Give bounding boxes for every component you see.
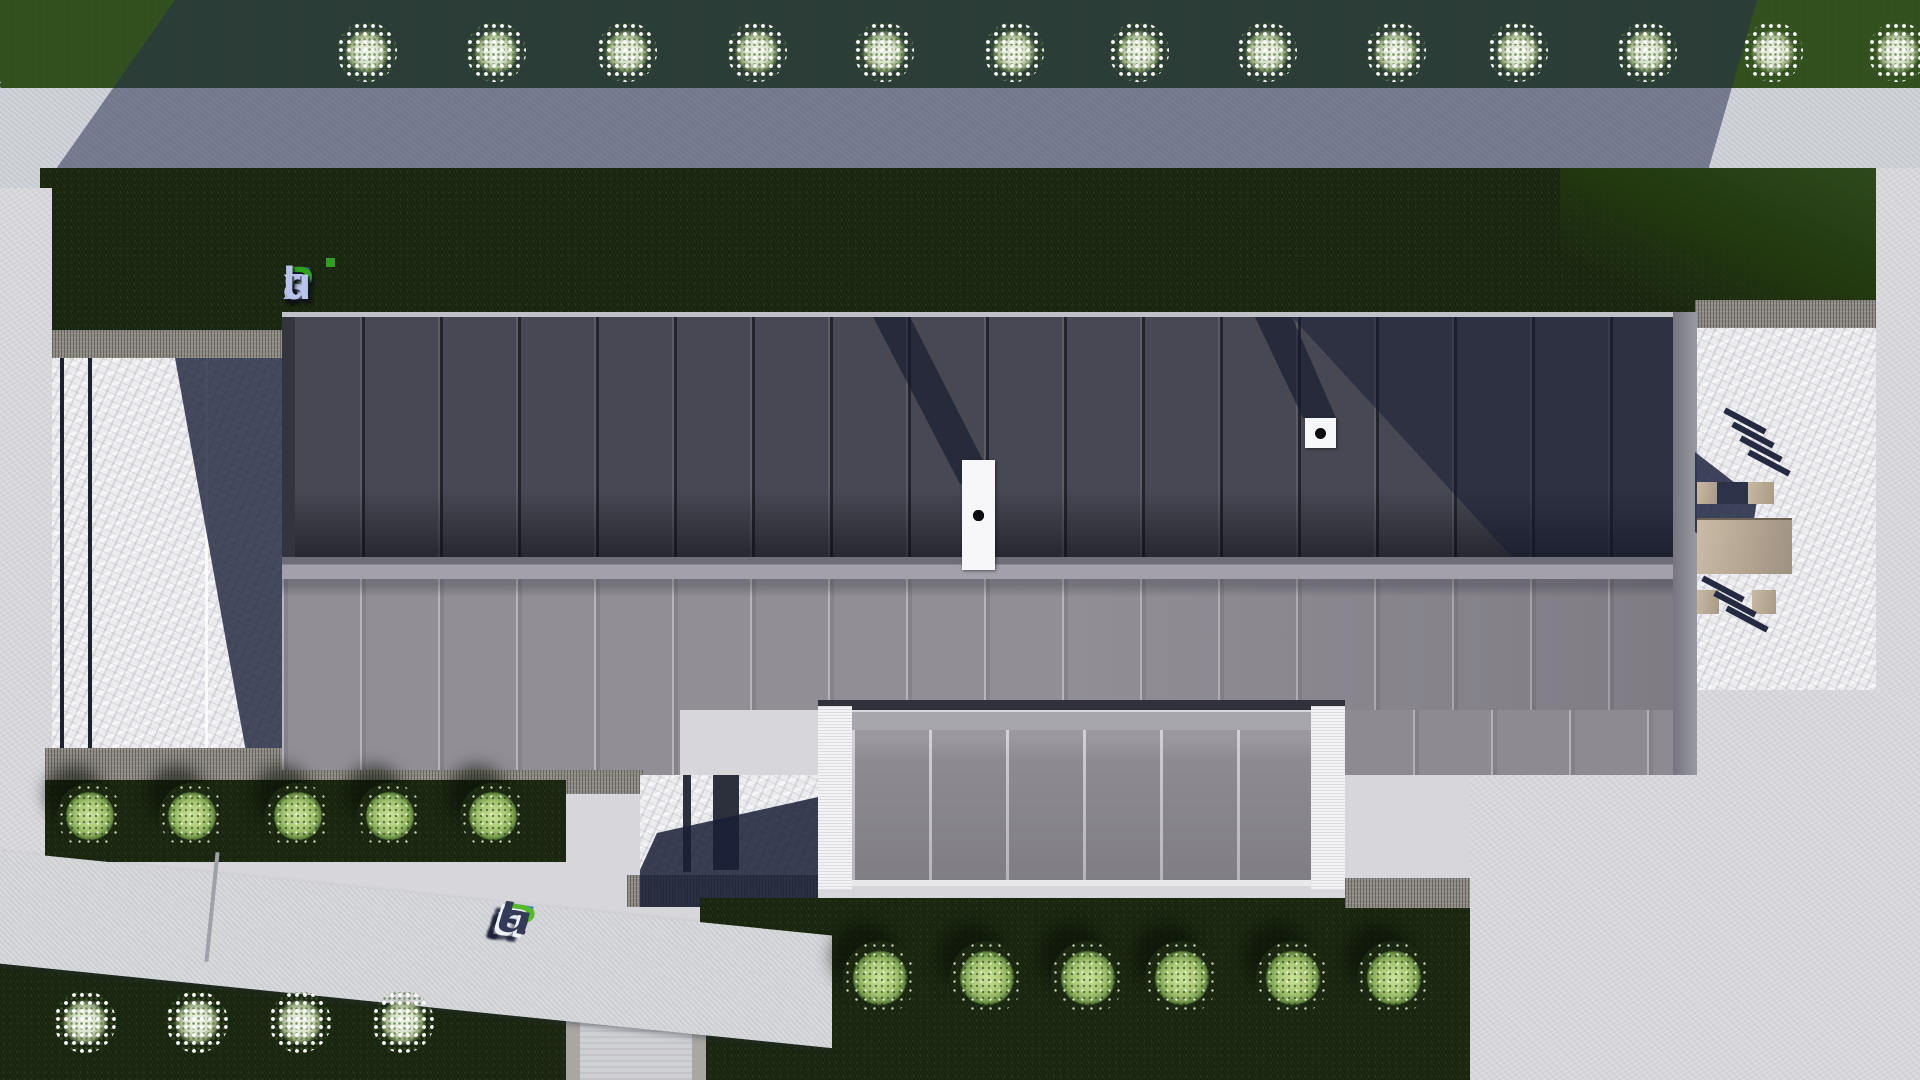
garage-roof-edge xyxy=(852,712,1311,730)
bench-plank xyxy=(1752,590,1776,614)
right-pavement-strip xyxy=(1876,168,1920,698)
building-left-edge xyxy=(282,317,295,557)
building-right-wall xyxy=(1673,312,1697,775)
vent-hole xyxy=(973,510,984,521)
courtyard-joint-line xyxy=(60,358,64,748)
brand-letter: u xyxy=(283,256,310,310)
lower-roof-left-wing xyxy=(282,710,680,778)
vent-hole xyxy=(1315,428,1326,439)
garage-roof-shading xyxy=(852,730,1311,882)
lawn-gravel-strip xyxy=(1345,878,1470,908)
roof-vent-small xyxy=(1305,418,1336,448)
lower-roof-right-wing xyxy=(1345,710,1696,775)
courtyard-joint-line xyxy=(88,358,92,748)
lower-roof-shading xyxy=(282,579,1696,710)
bottom-road-clip xyxy=(0,800,832,1080)
garage-pillar-right xyxy=(1311,706,1345,890)
terrace-gravel-strip xyxy=(1695,300,1880,328)
bench-plank xyxy=(1748,482,1774,504)
courtyard-gravel-top xyxy=(52,330,284,358)
building-cast-shadow xyxy=(0,0,1920,196)
middle-grass-lit-corner xyxy=(1560,168,1880,320)
roof-vent-large xyxy=(962,460,995,570)
bottom-road xyxy=(0,848,832,1052)
bench-plank xyxy=(1697,482,1717,504)
logo-i-dot xyxy=(326,258,335,267)
garage-bottom-edge xyxy=(852,880,1311,886)
outdoor-table xyxy=(1697,518,1792,574)
garage-eave-shadow xyxy=(818,700,1345,710)
aerial-site-render: FixPlans.ru FixPlans.ru FixPlans.ru xyxy=(0,0,1920,1080)
bench-gap-shadow xyxy=(1717,482,1748,504)
